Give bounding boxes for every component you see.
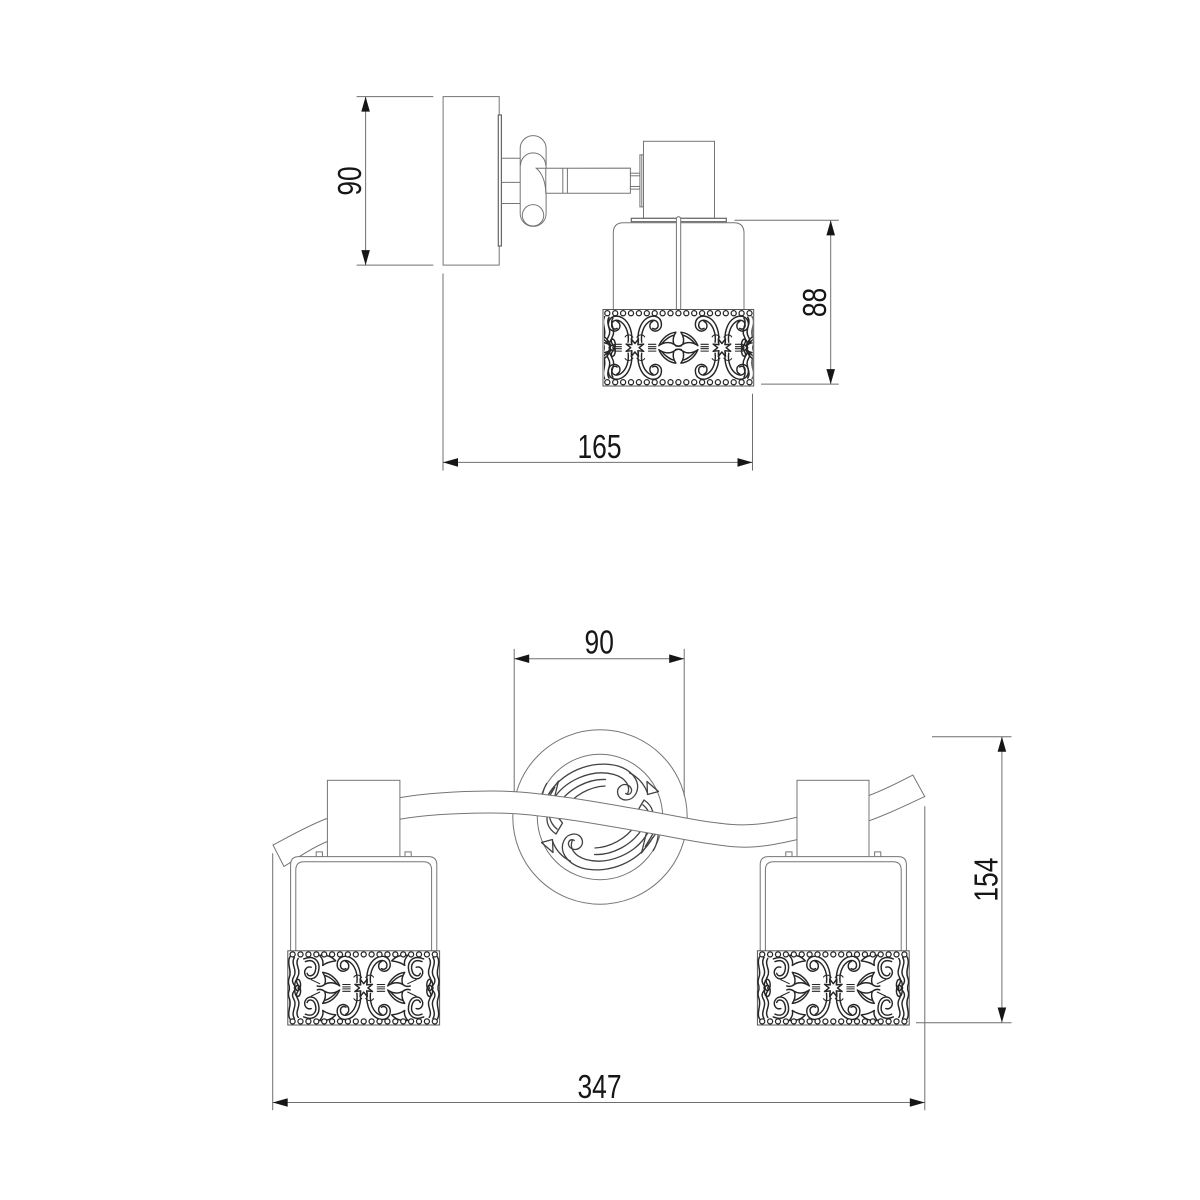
svg-text:90: 90	[585, 625, 614, 661]
svg-text:347: 347	[577, 1069, 621, 1105]
svg-text:90: 90	[332, 166, 368, 195]
svg-text:88: 88	[797, 288, 833, 317]
svg-text:165: 165	[577, 429, 621, 465]
svg-text:154: 154	[969, 858, 1005, 902]
